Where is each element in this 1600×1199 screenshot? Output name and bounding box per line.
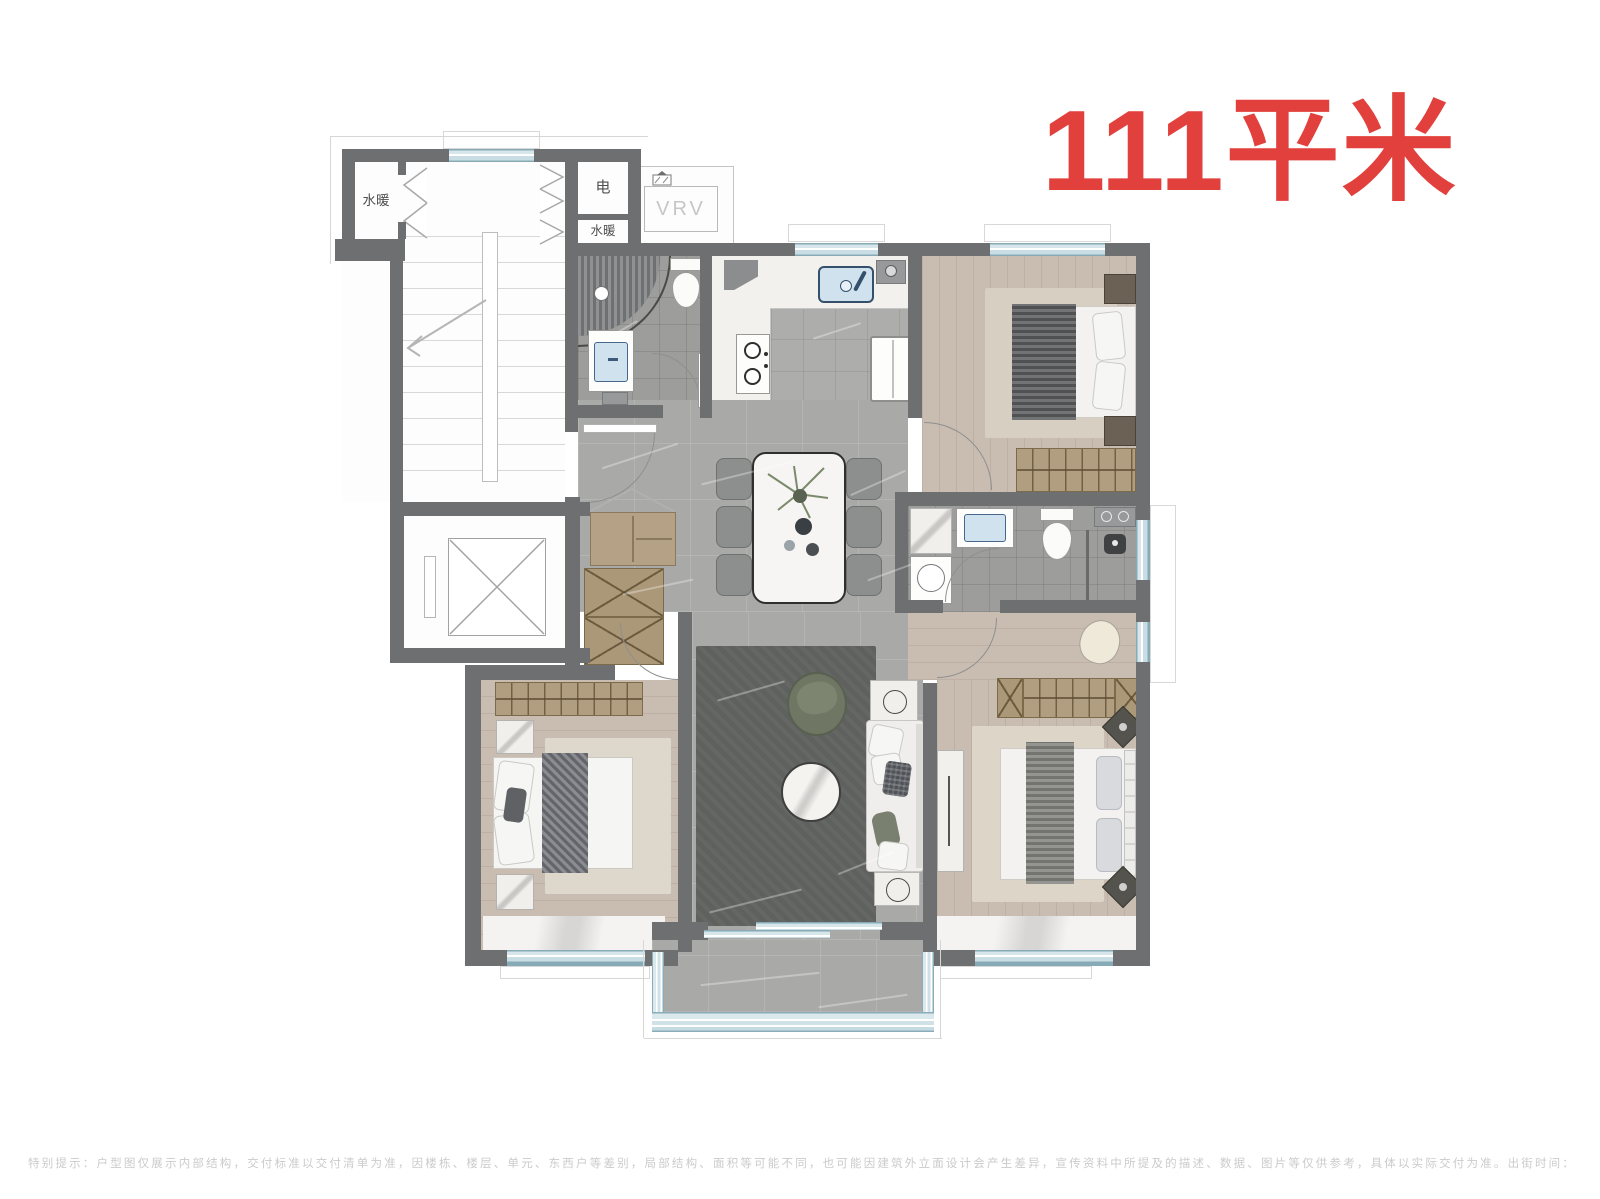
utility-room-left-label: 水暖 [350,194,402,208]
bedroom1-nightstand [1104,416,1136,446]
footer-disclaimer: 特别提示：户型图仅展示内部结构，交付标准以交付清单为准，因楼栋、楼层、单元、东西… [28,1155,1576,1171]
building-outline [330,136,331,264]
wall [878,243,990,256]
sofa-back [916,724,923,868]
fridge-door-line [892,340,894,398]
niche-dot-icon [1118,511,1129,522]
washing-machine-drum [917,564,945,592]
wall [895,506,908,613]
wall [895,492,1150,506]
wall [578,405,663,418]
utility-room-mid-label: 水暖 [578,225,628,238]
bedroom3-pillow [1096,756,1122,810]
dining-chair [716,554,752,596]
window [975,950,1113,966]
elevator-x-icon [448,538,546,636]
bedroom2-blanket [542,753,588,873]
window [704,930,830,938]
wall [342,149,450,162]
window-sill [940,966,1092,979]
bedroom-3-baywindow [937,916,1136,952]
wall [335,239,405,261]
bedroom3-dresser [937,750,964,872]
table-plate-icon [806,543,819,556]
stove-knob-icon [764,364,768,368]
vrv-fan-icon [650,170,674,187]
wall [565,497,580,665]
bathroom1-sink [594,342,628,382]
window-sill [443,131,540,149]
bedroom2-door-arc [620,622,678,680]
page-title: 111平米 [1042,58,1458,223]
kitchen-faucet-icon [840,280,852,292]
wall [628,149,641,256]
wall [895,600,943,613]
coffee-table [781,762,841,822]
building-outline [330,136,648,137]
bedroom1-wardrobe [1016,448,1136,492]
window [1136,622,1150,662]
bedroom-2-baywindow [483,916,665,952]
wall [578,214,628,220]
wall [390,648,590,663]
bathroom1-cabinet [602,392,628,405]
shower-head-dot [1112,540,1118,546]
toilet-tank [1040,508,1074,521]
bedroom1-blanket [1012,304,1076,420]
wall [565,256,578,432]
wall [678,612,692,952]
bedroom3-headboard [1124,750,1136,878]
wall [465,665,615,680]
dining-chair [716,506,752,548]
toilet-tank [670,258,702,271]
bedroom2-nightstand [496,874,534,910]
table-plate-icon [784,540,795,551]
wall [398,161,406,175]
window [795,243,878,256]
bedroom1-pillow [1092,311,1127,362]
wall [565,243,795,256]
wall [923,683,937,950]
building-outline [940,940,941,1038]
bedroom3-pillow [1096,818,1122,872]
elevator-door [424,556,436,618]
wall [534,149,628,162]
shower-head-icon [594,286,609,301]
niche-dot-icon [1101,511,1112,522]
entry-door-leaf [583,424,657,433]
bedroom1-nightstand [1104,274,1136,304]
stove-burner-icon [744,342,761,359]
dining-chair [846,506,882,548]
wall [1136,662,1150,952]
wall [390,502,590,516]
louver-door-icon [538,164,566,214]
stove-burner-icon [744,368,761,385]
wall [1136,243,1150,520]
window [507,950,645,966]
bedroom3-wardrobe-end [997,678,1023,718]
vrv-label: VRV [656,199,706,219]
wall [465,950,507,966]
window-sill [984,224,1111,242]
shoe-cabinet-shelf-line [632,516,634,562]
wall [390,502,404,662]
side-table [874,872,920,906]
window-sill [500,966,650,979]
window [756,922,882,930]
wall [908,256,922,418]
balcony-glazing [652,1012,934,1032]
bedroom3-dresser-handle [948,776,950,846]
kitchen-corner-unit-dot [885,265,897,277]
bathroom2-sink [964,514,1006,542]
side-table [870,680,918,722]
building-outline [643,940,644,1038]
balcony-glazing [922,952,934,1012]
nightstand-dot [1119,883,1127,891]
nightstand-dot [1119,723,1127,731]
louver-door-icon [538,219,566,245]
wall [390,261,403,502]
floor-plan-page: VRV [0,0,1600,1199]
balcony-glazing [652,952,664,1012]
wall [465,665,481,966]
faucet-icon [608,358,618,361]
bedroom1-pillow [1092,361,1127,412]
window [449,149,534,162]
electric-room-label: 电 [578,180,628,195]
coat-nook-icon [586,486,678,514]
stove-knob-icon [764,352,768,356]
wall [398,222,406,239]
bedroom2-nightstand [496,720,534,754]
bedroom3-wardrobe [1023,678,1115,718]
vrv-outdoor-unit: VRV [644,186,718,232]
window-sill [788,224,885,242]
shower-glass-line [1086,530,1089,610]
bathroom2-cabinet [910,508,952,554]
wall [1000,600,1150,613]
shoe-cabinet-shelf-line [636,538,672,540]
bedroom2-wardrobe [495,682,643,716]
table-plate-icon [795,518,812,535]
window [1136,520,1150,580]
wall [652,922,708,940]
wall [700,256,712,418]
wall [565,149,578,256]
stair-direction-arrow [398,286,498,362]
sofa-pillow-dark [882,760,912,797]
wall [1113,950,1150,966]
building-outline [644,1038,942,1039]
window-sill [1150,505,1176,683]
bedroom3-blanket [1026,742,1074,884]
wall [880,922,923,940]
window [990,243,1105,256]
